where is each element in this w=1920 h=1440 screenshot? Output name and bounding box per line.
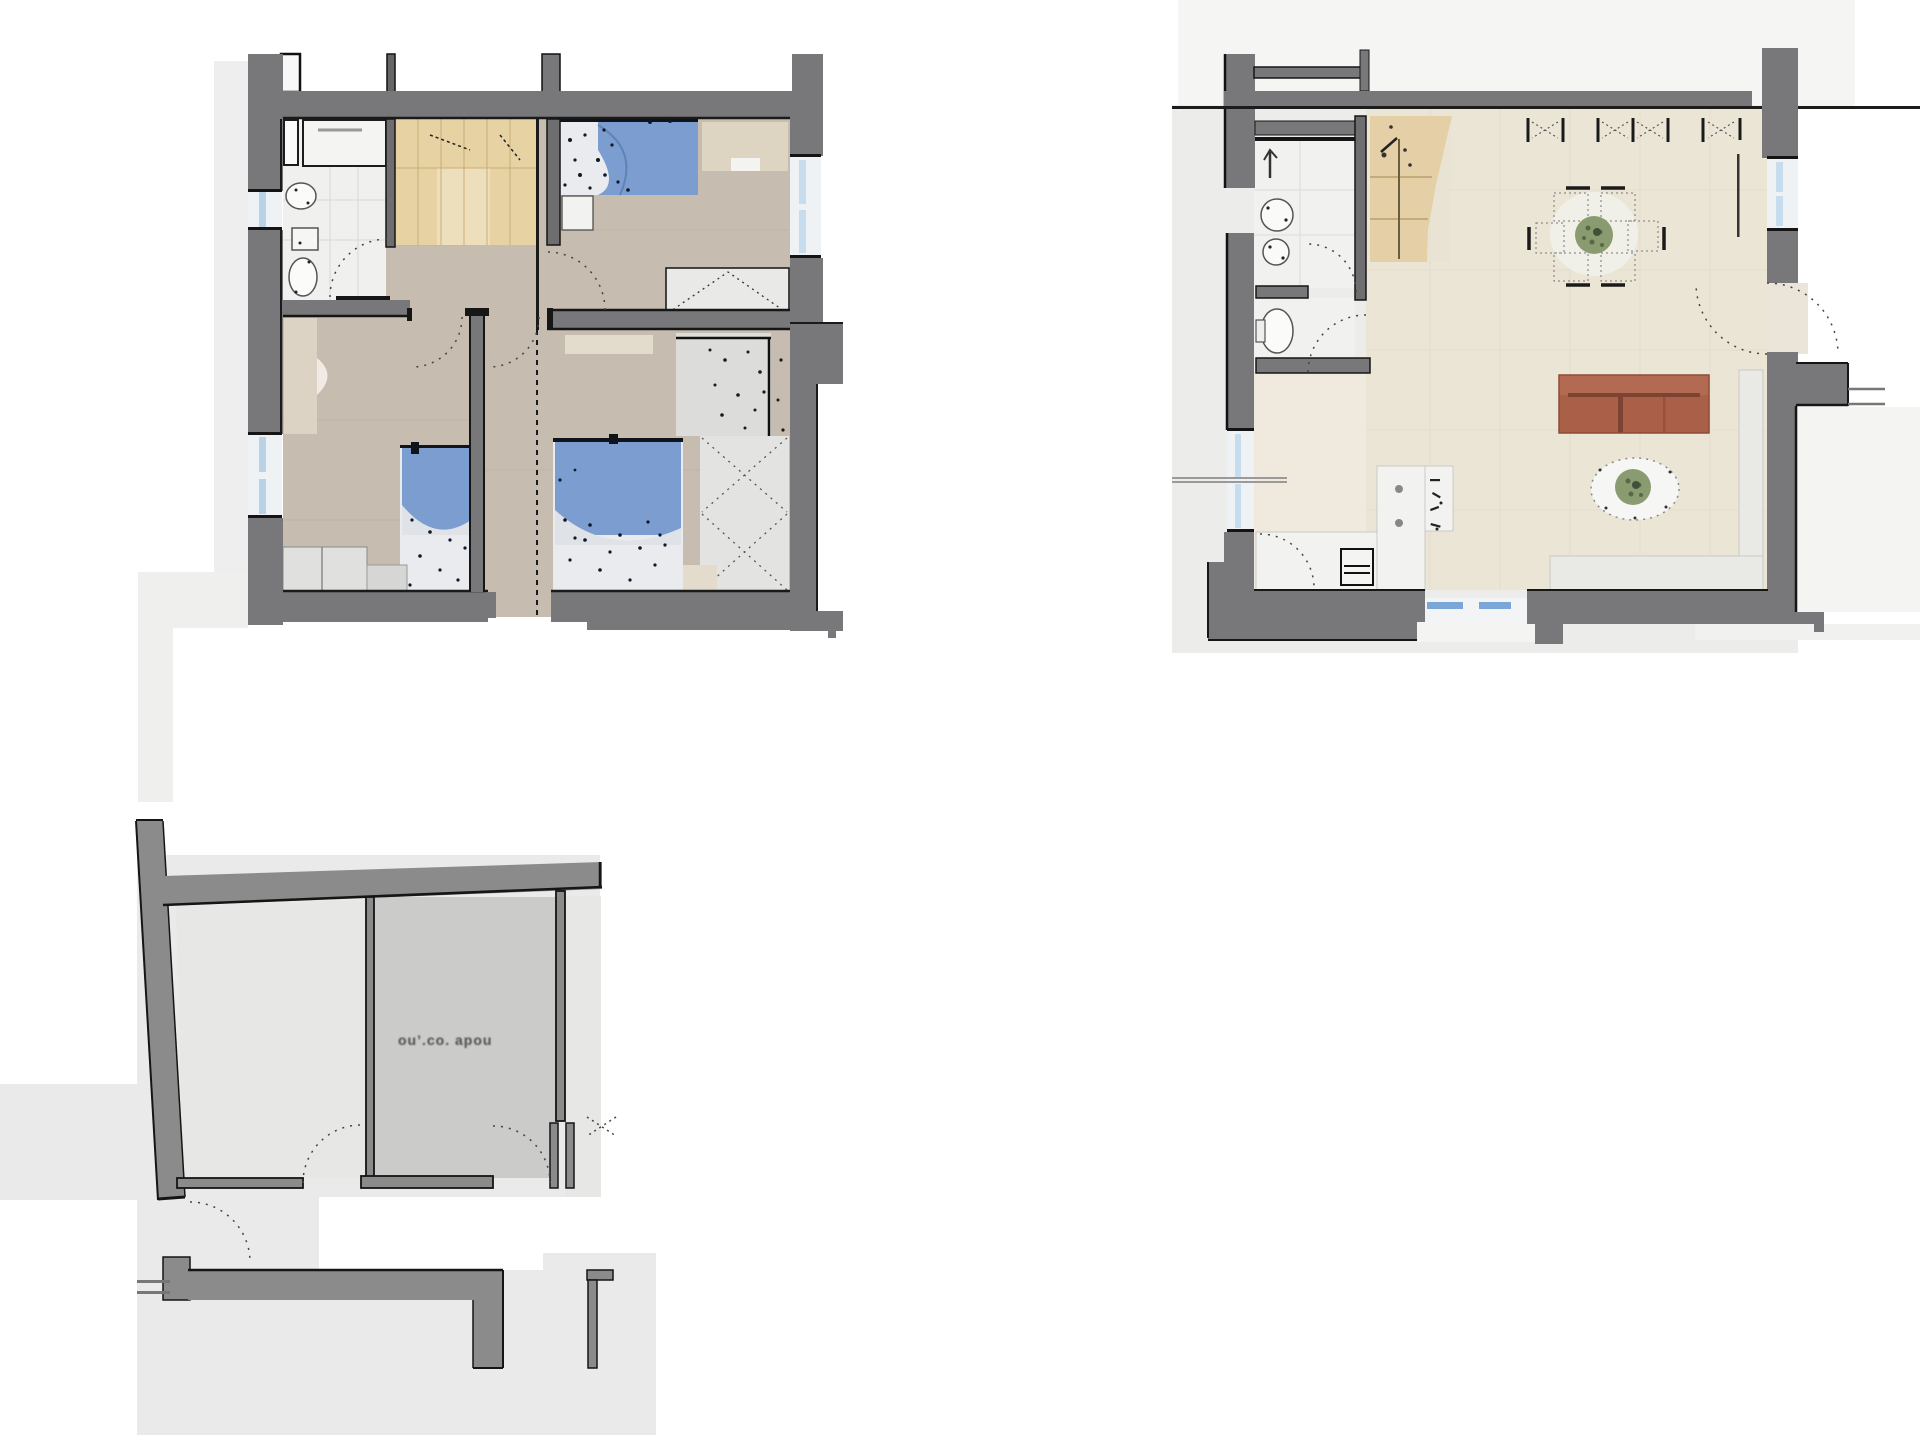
svg-text:ou’.co. apou: ou’.co. apou [398,1032,492,1048]
